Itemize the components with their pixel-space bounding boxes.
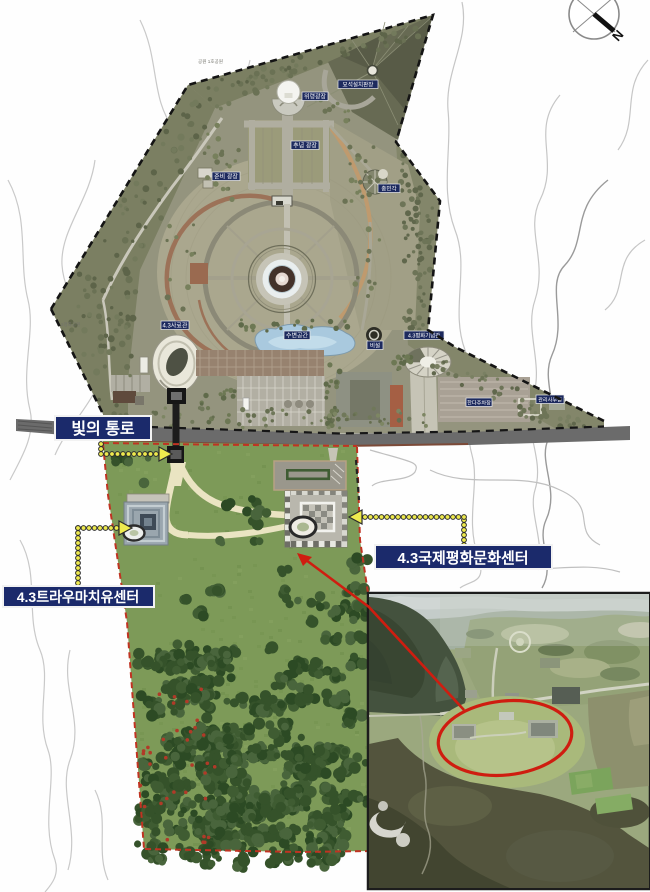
svg-text:위령광장: 위령광장 <box>304 93 327 101</box>
svg-text:4.3평화기념관: 4.3평화기념관 <box>408 332 440 340</box>
svg-text:4.3사료관: 4.3사료관 <box>163 322 188 330</box>
svg-text:한다주차장: 한다주차장 <box>467 399 491 407</box>
svg-text:묘석설치판장: 묘석설치판장 <box>343 81 374 89</box>
svg-text:공원 1호공원: 공원 1호공원 <box>198 58 223 64</box>
svg-text:준비 광장: 준비 광장 <box>214 173 238 181</box>
svg-text:수변공간: 수변공간 <box>286 332 309 340</box>
svg-text:빛의 통로: 빛의 통로 <box>71 420 135 438</box>
svg-text:4.3국제평화문화센터: 4.3국제평화문화센터 <box>397 549 528 567</box>
svg-text:4.3트라우마치유센터: 4.3트라우마치유센터 <box>17 589 140 605</box>
svg-text:충민각: 충민각 <box>381 185 396 193</box>
svg-text:4.3평화공원: 4.3평화공원 <box>57 321 80 328</box>
svg-text:추념 광장: 추념 광장 <box>293 142 317 150</box>
svg-text:비설: 비설 <box>370 342 380 350</box>
